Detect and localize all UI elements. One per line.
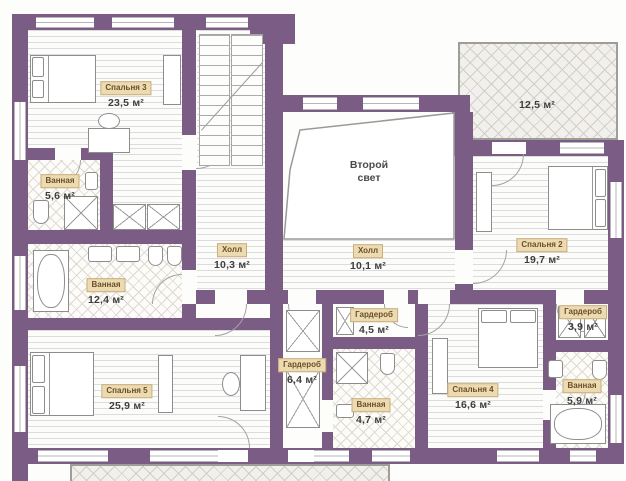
room-area: 23,5 м² (108, 97, 144, 109)
room-label-bedroom-5: Спальня 5 25,9 м² (101, 384, 152, 412)
chair (222, 372, 240, 396)
pillow (32, 386, 45, 414)
door-opening (288, 450, 314, 462)
wall (196, 290, 215, 304)
toilet (380, 353, 395, 375)
window (372, 450, 410, 462)
room-name-badge: Ванная (351, 398, 390, 412)
wall (316, 290, 384, 304)
room-area: 3,9 м² (568, 321, 598, 333)
wall (182, 30, 196, 135)
wall (408, 290, 418, 304)
dresser (476, 172, 492, 232)
room-label-bedroom-2: Спальня 2 19,7 м² (516, 238, 567, 266)
room-name-badge: Ванная (40, 174, 79, 188)
wall (553, 340, 608, 352)
wall (247, 290, 288, 304)
bed-line (48, 56, 49, 102)
wardrobe-shelf (286, 310, 320, 352)
wall (28, 148, 55, 160)
wall (333, 337, 415, 349)
tv-stand (158, 355, 173, 413)
pillow (595, 199, 606, 227)
room-area: 12,5 м² (519, 99, 555, 111)
door-opening (218, 450, 248, 462)
closet-shelf (113, 204, 146, 230)
pillow (481, 310, 507, 323)
window (610, 182, 622, 238)
wardrobe-cabinet (163, 55, 181, 105)
toilet (592, 360, 607, 380)
window (363, 97, 419, 110)
room-name-badge: Спальня 4 (447, 383, 498, 397)
room-label-bedroom-3: Спальня 3 23,5 м² (100, 81, 151, 109)
chair (98, 113, 120, 129)
room-name-badge: Спальня 2 (516, 238, 567, 252)
pillow (32, 57, 44, 77)
window (14, 102, 26, 160)
floor-terrace (458, 42, 618, 140)
room-label-bathroom-east: Ванная 5,9 м² (562, 379, 601, 407)
room-name-badge: Гардероб (350, 308, 398, 322)
wall (182, 304, 196, 318)
room-label-wardrobe-mid: Гардероб 4,5 м² (350, 308, 398, 336)
window (38, 450, 108, 462)
room-area: 6,4 м² (287, 374, 317, 386)
window (36, 17, 94, 28)
room-label-wardrobe-west: Гардероб 6,4 м² (278, 358, 326, 386)
room-area: 16,6 м² (455, 399, 491, 411)
wall (455, 284, 473, 304)
room-name-badge: Холл (353, 244, 383, 258)
room-label-second-light: Второй свет (341, 159, 397, 185)
room-area: 10,1 м² (350, 260, 386, 272)
toilet (148, 246, 163, 266)
bed-line (592, 167, 593, 229)
room-name: Второй свет (341, 159, 397, 185)
bathtub-basin (554, 408, 602, 440)
door-opening (492, 142, 526, 154)
window (14, 256, 26, 310)
window (570, 450, 596, 462)
stairs-flight (199, 34, 230, 166)
sink (116, 246, 140, 262)
room-label-terrace: 12,5 м² (519, 99, 555, 111)
shower (336, 352, 368, 384)
room-name-badge: Спальня 5 (101, 384, 152, 398)
room-name-badge: Холл (217, 243, 247, 257)
floor-terrace-bottom (70, 464, 390, 481)
room-name-badge: Гардероб (559, 305, 607, 319)
room-name-badge: Спальня 3 (100, 81, 151, 95)
dresser (432, 338, 448, 394)
pillow (510, 310, 536, 323)
sink (548, 360, 563, 378)
window (560, 142, 604, 154)
room-label-hall-east: Холл 10,1 м² (350, 244, 386, 272)
window (303, 97, 337, 110)
wall (265, 14, 283, 290)
room-area: 25,9 м² (109, 400, 145, 412)
room-name-badge: Гардероб (278, 358, 326, 372)
room-label-bedroom-4: Спальня 4 16,6 м² (447, 383, 498, 411)
wall (12, 230, 196, 244)
wall (322, 432, 333, 448)
floor-plan: Спальня 3 23,5 м² Ванная 5,6 м² Холл 10,… (0, 0, 626, 481)
room-area: 5,6 м² (45, 190, 75, 202)
bed-line (49, 353, 50, 415)
room-label-bathroom-upper: Ванная 5,6 м² (40, 174, 79, 202)
room-area: 19,7 м² (524, 254, 560, 266)
wall (584, 290, 608, 304)
toilet (33, 200, 49, 224)
room-label-bathroom-mid: Ванная 4,7 м² (351, 398, 390, 426)
room-label-wardrobe-east: Гардероб 3,9 м² (559, 305, 607, 333)
room-area: 12,4 м² (88, 294, 124, 306)
room-area: 4,7 м² (356, 414, 386, 426)
room-area: 5,9 м² (567, 395, 597, 407)
desk (88, 128, 130, 153)
sink (85, 172, 98, 190)
closet-shelf (147, 204, 180, 230)
stairs-flight (231, 34, 263, 166)
room-area: 10,3 м² (214, 259, 250, 271)
desk (240, 355, 266, 411)
window (610, 395, 622, 443)
room-label-hall-west: Холл 10,3 м² (214, 243, 250, 271)
window (206, 17, 248, 28)
sink (88, 246, 112, 262)
window (150, 450, 226, 462)
window (497, 450, 539, 462)
pillow (32, 355, 45, 383)
room-name-badge: Ванная (562, 379, 601, 393)
wall (100, 148, 113, 232)
room-label-bathroom-master: Ванная 12,4 м² (86, 278, 125, 306)
room-area: 4,5 м² (359, 324, 389, 336)
wall (182, 170, 196, 270)
pillow (595, 169, 606, 197)
wall (455, 112, 473, 250)
bathtub-basin (37, 254, 65, 308)
room-name-badge: Ванная (86, 278, 125, 292)
window (112, 17, 174, 28)
window (14, 366, 26, 432)
bidet (167, 246, 182, 266)
pillow (32, 80, 44, 98)
